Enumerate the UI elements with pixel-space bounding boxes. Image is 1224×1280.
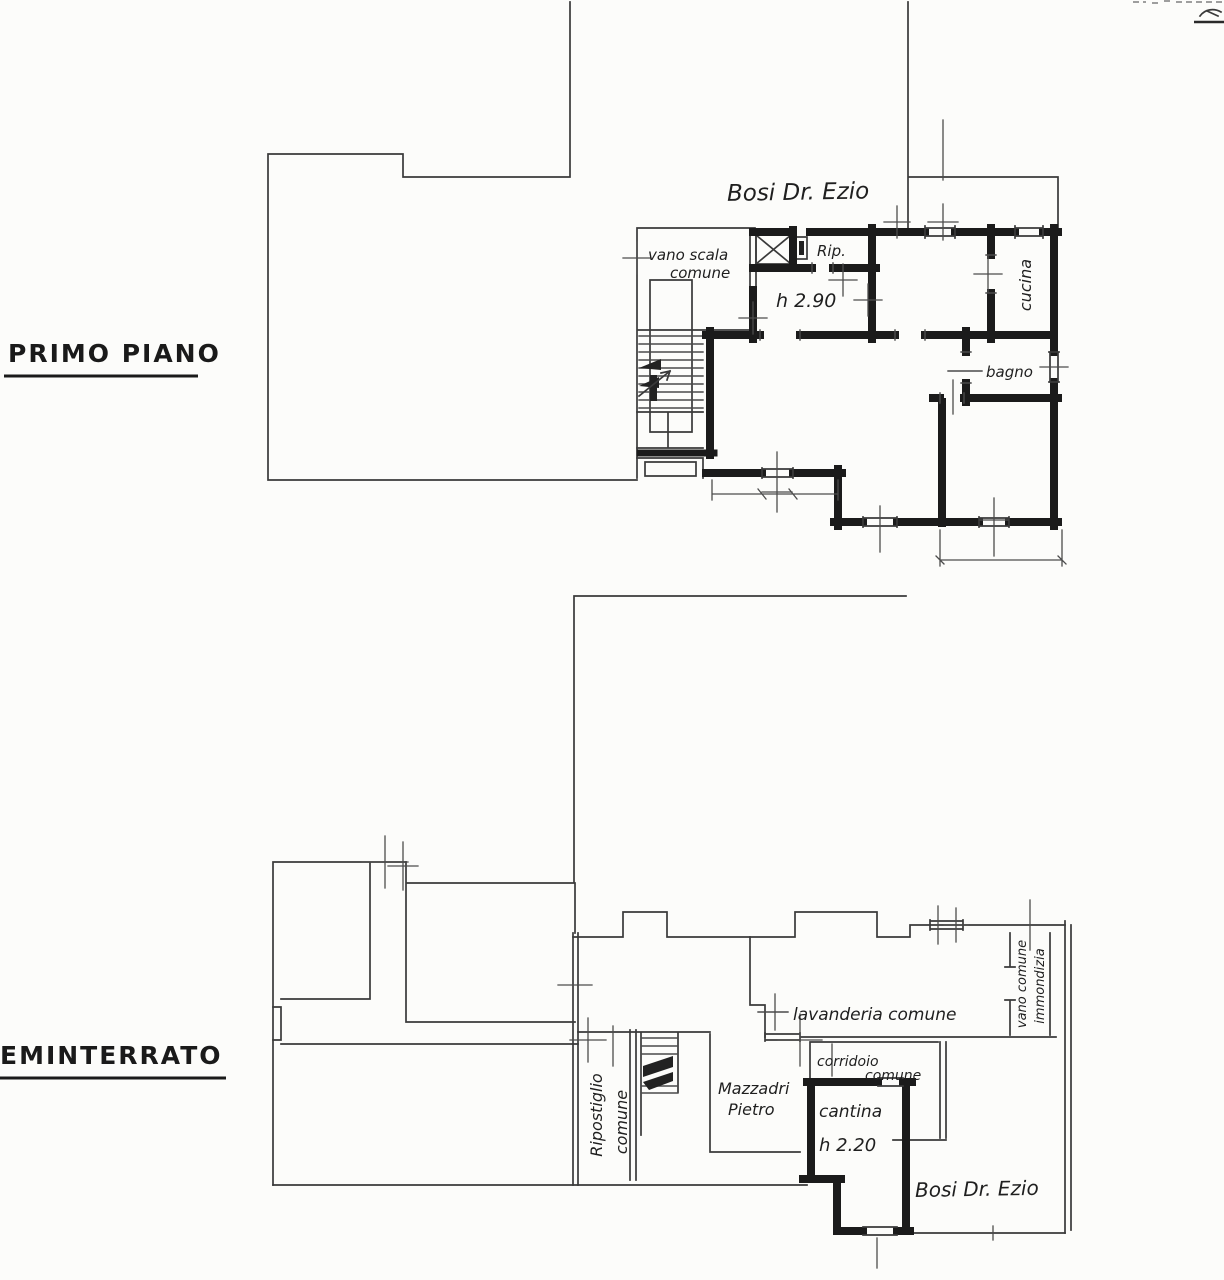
tenant-label-pietro: Pietro (728, 1100, 775, 1119)
room-label-rip: Rip. (817, 242, 846, 260)
room-label-bagno: bagno (986, 363, 1033, 381)
primo-piano-plan: PRIMO PIANO Bosi Dr. Ezio vano scala com… (4, 2, 1068, 566)
room-label-vano-scala-2: comune (670, 264, 730, 282)
seminterrato-plan: EMINTERRATO Ripostiglio comune lavanderi… (0, 596, 1071, 1268)
height-note-primo: h 2.90 (776, 290, 836, 312)
basement-dimension-marks (558, 900, 1030, 1268)
floor-title-seminterrato: EMINTERRATO (0, 1041, 223, 1070)
primo-piano-labels: PRIMO PIANO Bosi Dr. Ezio vano scala com… (4, 178, 1035, 381)
plan-sheet: PRIMO PIANO Bosi Dr. Ezio vano scala com… (0, 0, 1224, 1280)
corner-fragment (1133, 1, 1224, 22)
owner-label-primo: Bosi Dr. Ezio (727, 178, 870, 206)
room-label-vano-scala: vano scala (648, 246, 728, 264)
owner-label-seminterrato: Bosi Dr. Ezio (915, 1176, 1039, 1202)
room-label-corridoio-2: comune (865, 1068, 921, 1084)
floor-plan-drawing: PRIMO PIANO Bosi Dr. Ezio vano scala com… (0, 0, 1224, 1280)
room-label-ripostiglio: Ripostiglio (587, 1073, 606, 1157)
floor-title-primo-piano: PRIMO PIANO (8, 339, 221, 368)
seminterrato-labels: EMINTERRATO Ripostiglio comune lavanderi… (0, 940, 1048, 1202)
room-label-immondizia: vano comune (1015, 940, 1030, 1028)
tenant-label-mazzadri: Mazzadri (718, 1079, 790, 1098)
room-label-immondizia-2: immondizia (1033, 948, 1048, 1023)
height-note-seminterrato: h 2.20 (819, 1135, 876, 1156)
room-label-ripostiglio-2: comune (612, 1090, 631, 1154)
basement-stairs (641, 1033, 678, 1135)
elevator-shaft (756, 235, 791, 264)
room-label-lavanderia: lavanderia comune (793, 1005, 957, 1025)
room-label-cucina: cucina (1016, 259, 1035, 311)
room-label-cantina: cantina (819, 1102, 882, 1122)
